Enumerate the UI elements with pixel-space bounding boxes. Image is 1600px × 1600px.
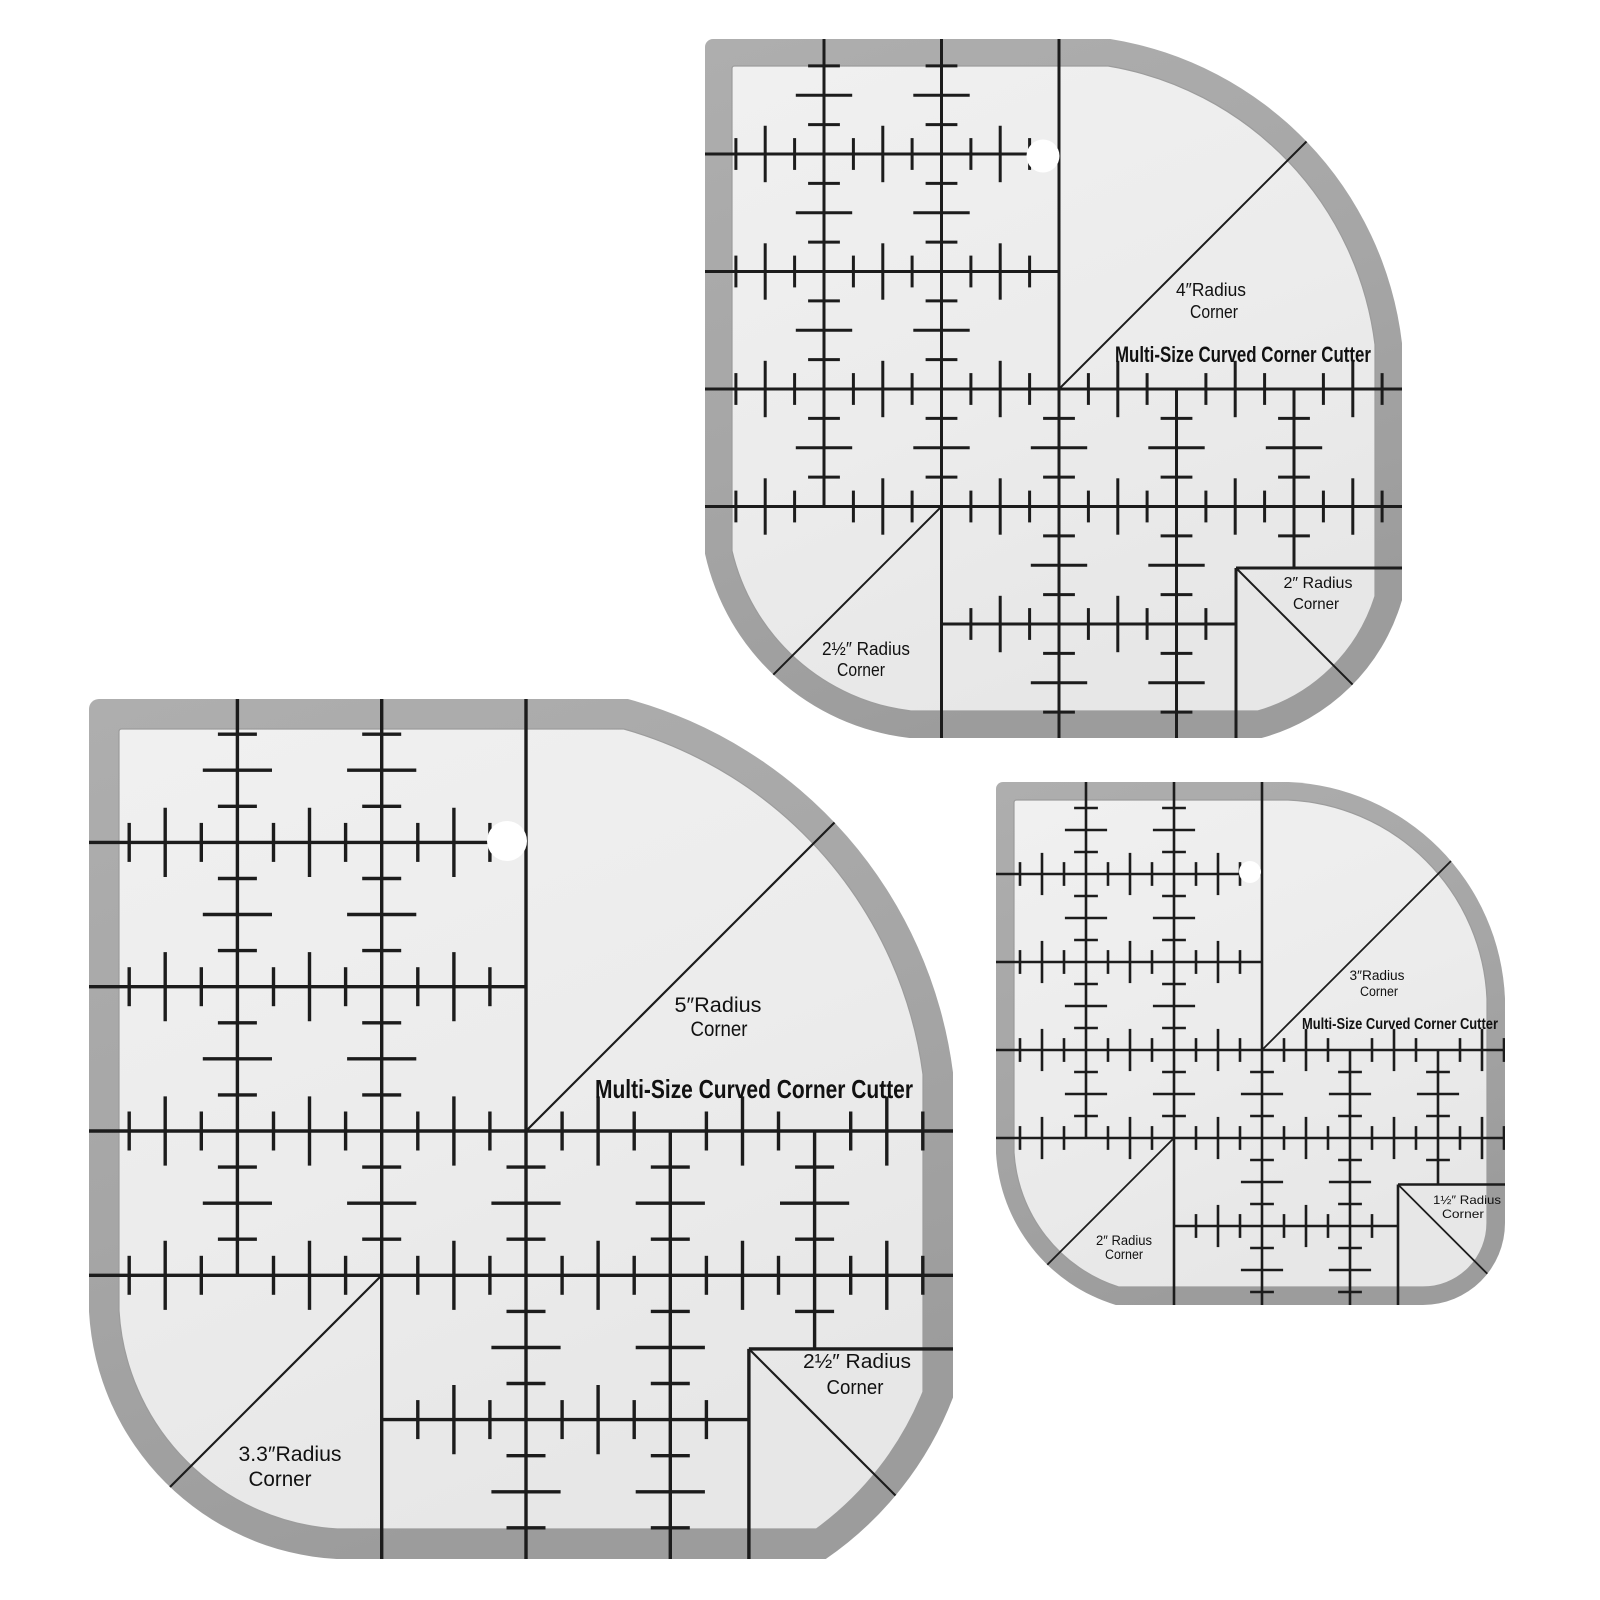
svg-text:Corner: Corner	[827, 1377, 884, 1399]
svg-text:Corner: Corner	[691, 1018, 748, 1041]
svg-text:4″Radius: 4″Radius	[1176, 280, 1246, 300]
svg-text:Corner: Corner	[249, 1468, 312, 1491]
svg-text:Corner: Corner	[1293, 596, 1340, 613]
svg-text:Corner: Corner	[1105, 1247, 1143, 1262]
svg-text:2″ Radius: 2″ Radius	[1284, 575, 1353, 592]
svg-text:Corner: Corner	[1360, 984, 1398, 999]
svg-text:Multi-Size Curved Corner Cutte: Multi-Size Curved Corner Cutter	[1302, 1016, 1498, 1033]
svg-text:2″ Radius: 2″ Radius	[1096, 1233, 1152, 1248]
svg-text:Multi-Size Curved Corner Cutte: Multi-Size Curved Corner Cutter	[1115, 342, 1371, 367]
svg-text:Corner: Corner	[1442, 1207, 1484, 1221]
svg-text:2½″ Radius: 2½″ Radius	[803, 1351, 911, 1373]
svg-text:Multi-Size Curved Corner Cutte: Multi-Size Curved Corner Cutter	[595, 1074, 913, 1104]
svg-text:2½″ Radius: 2½″ Radius	[822, 639, 910, 659]
svg-text:3.3″Radius: 3.3″Radius	[239, 1443, 342, 1466]
svg-text:1½″ Radius: 1½″ Radius	[1433, 1193, 1501, 1207]
svg-text:3″Radius: 3″Radius	[1350, 968, 1405, 983]
svg-text:Corner: Corner	[1190, 302, 1238, 322]
svg-text:5″Radius: 5″Radius	[675, 994, 762, 1017]
svg-text:Corner: Corner	[837, 660, 885, 680]
